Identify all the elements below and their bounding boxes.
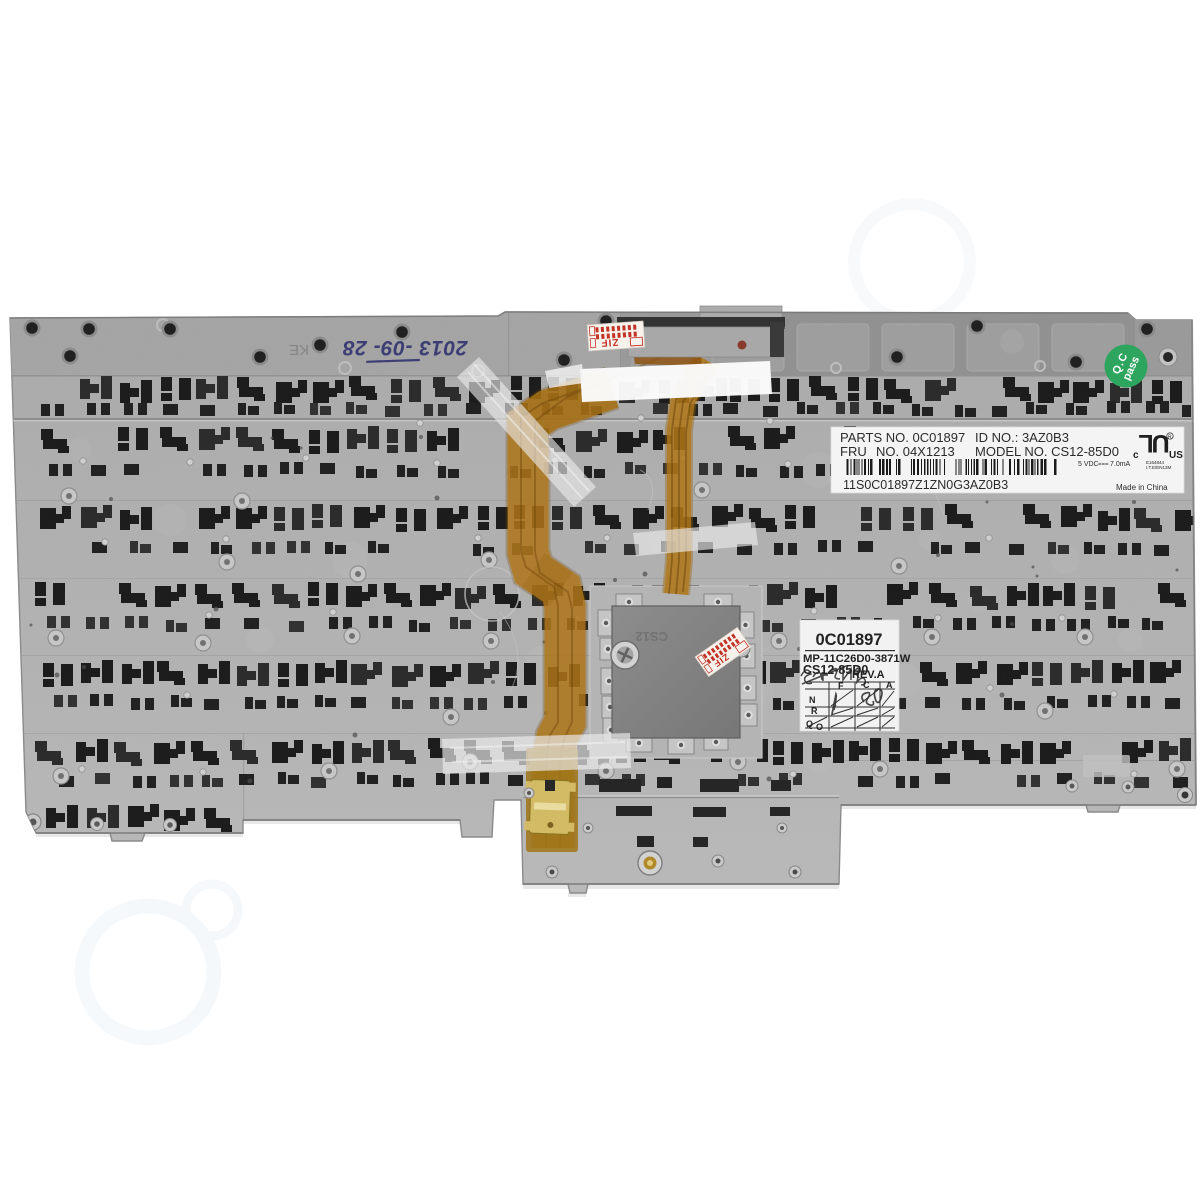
svg-text:===: === xyxy=(1098,462,1109,468)
svg-text:7.0mA: 7.0mA xyxy=(1110,461,1131,468)
svg-text:A: A xyxy=(886,680,893,690)
svg-text:Q: Q xyxy=(806,719,813,729)
svg-text:US: US xyxy=(1169,450,1183,461)
svg-text:R: R xyxy=(1168,435,1172,441)
svg-text:c: c xyxy=(1133,450,1139,461)
svg-text:MODEL NO. CS12-85D0: MODEL NO. CS12-85D0 xyxy=(975,444,1119,459)
svg-text:11S0C01897Z1ZN0G3AZ0B3: 11S0C01897Z1ZN0G3AZ0B3 xyxy=(843,478,1008,492)
svg-text:ID NO.: 3AZ0B3: ID NO.: 3AZ0B3 xyxy=(975,430,1069,445)
svg-text:Made in China: Made in China xyxy=(1116,483,1168,492)
svg-text:N: N xyxy=(809,695,816,705)
svg-text:F: F xyxy=(838,681,844,691)
svg-text:5 VDC: 5 VDC xyxy=(1078,461,1099,468)
svg-text:NO. 04X1213: NO. 04X1213 xyxy=(876,444,955,459)
svg-text:I.T.E/EN13M: I.T.E/EN13M xyxy=(1146,465,1172,470)
svg-text:0C01897: 0C01897 xyxy=(816,631,883,649)
svg-text:CS12: CS12 xyxy=(635,629,668,644)
svg-text:FRU: FRU xyxy=(840,444,867,459)
svg-text:C: C xyxy=(863,680,870,690)
svg-text:UL: UL xyxy=(1139,429,1170,457)
svg-text:PARTS NO. 0C01897: PARTS NO. 0C01897 xyxy=(840,430,965,445)
svg-text:O: O xyxy=(816,722,823,732)
svg-text:R: R xyxy=(811,706,818,716)
svg-text:ZIF: ZIF xyxy=(600,336,619,348)
